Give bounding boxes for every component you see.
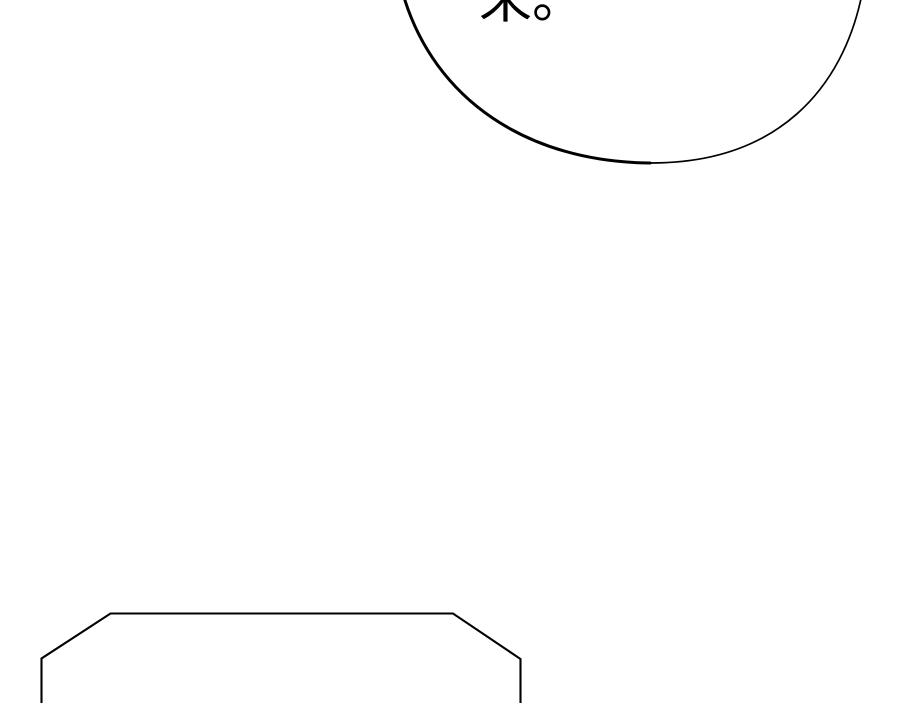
speech-bubbles-artwork <box>0 0 900 703</box>
top-speech-bubble-arc-right <box>650 0 862 163</box>
comic-panel: 来。 <box>0 0 900 703</box>
bottom-speech-bubble-octagon <box>42 614 521 703</box>
dialogue-text: 来。 <box>479 0 585 26</box>
